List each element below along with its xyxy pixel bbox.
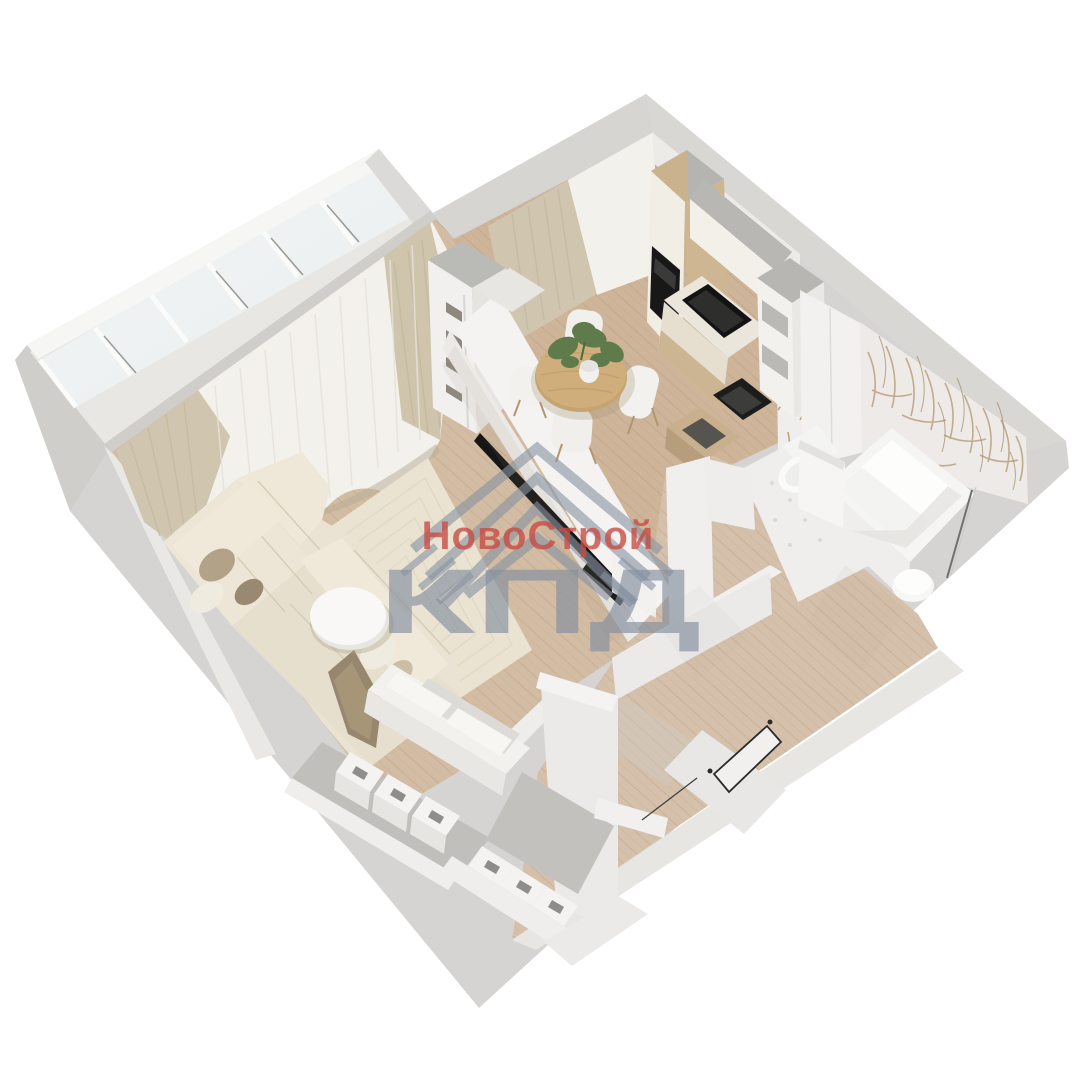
svg-text:КПД: КПД	[379, 551, 702, 653]
